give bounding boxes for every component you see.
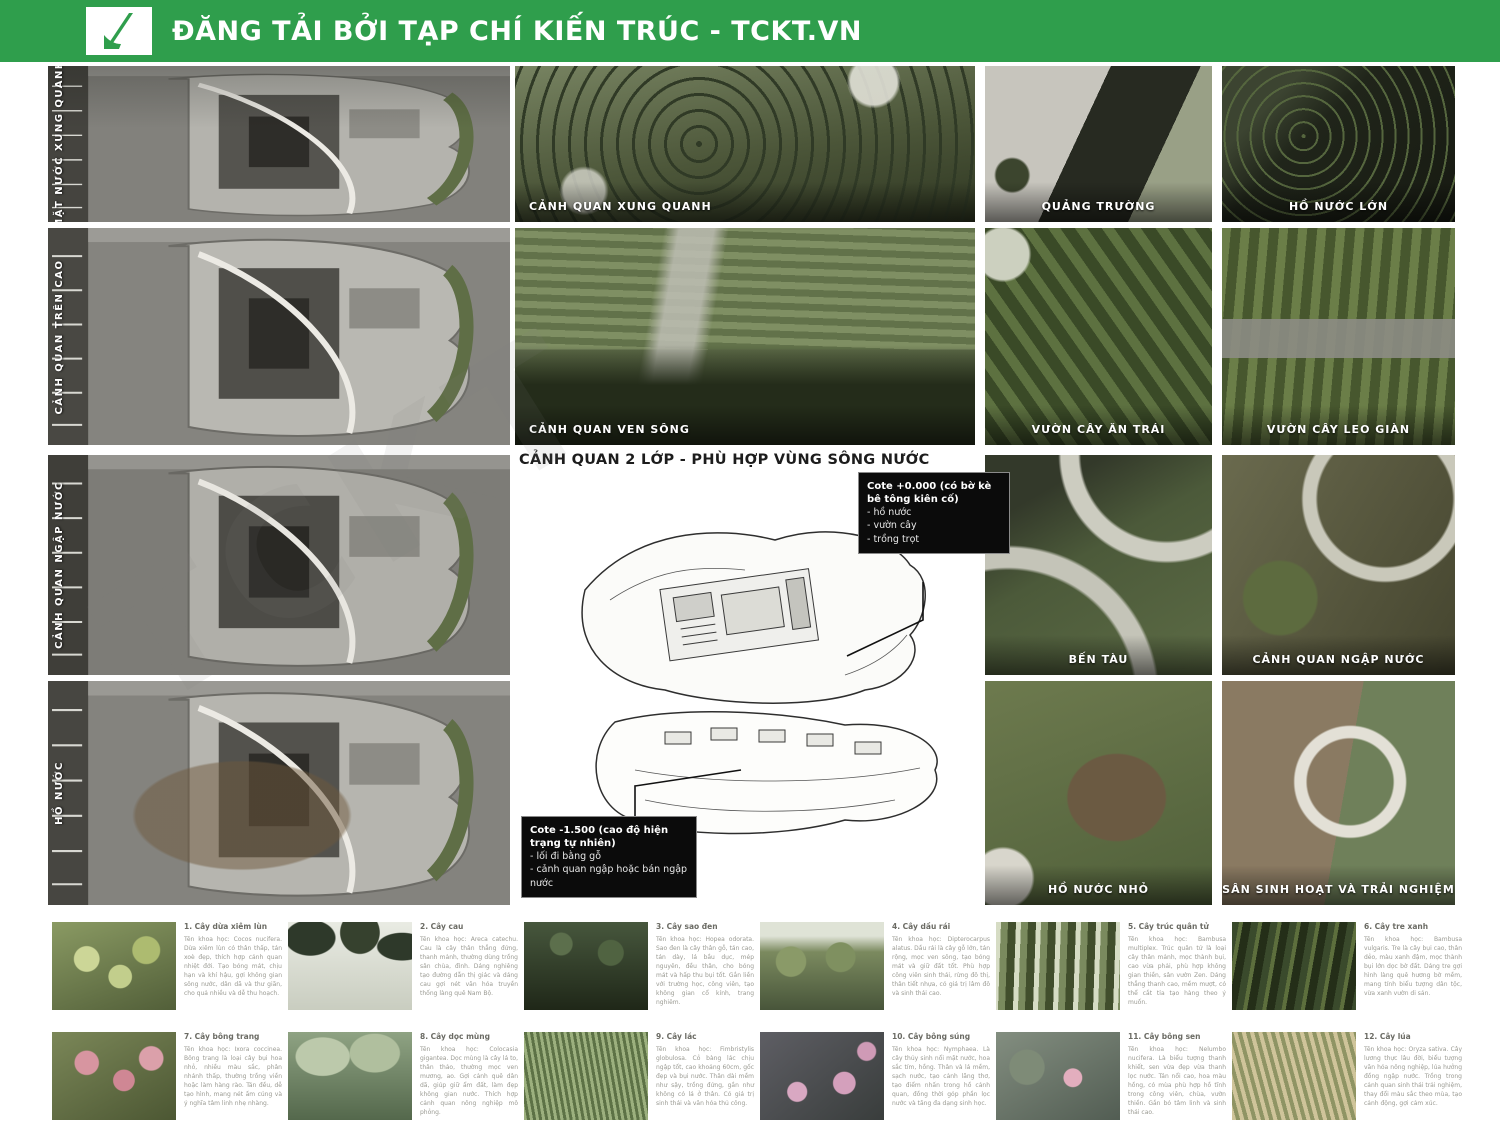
plant-entry-5: 5. Cây trúc quân tử Tên khoa học: Bambus…	[1128, 922, 1226, 1007]
areca-palm-photo	[288, 922, 412, 1010]
two-layer-landscape-diagram: CẢNH QUAN 2 LỚP - PHÙ HỢP VÙNG SÔNG NƯỚC	[515, 450, 975, 905]
render-riverside-landscape: CẢNH QUAN VEN SÔNG	[515, 228, 975, 445]
plant-description: Tên khoa học: Areca catechu. Cau là cây …	[420, 935, 518, 998]
plant-photo-11	[996, 1032, 1120, 1120]
site-plan-label-1: MẶT NƯỚC XUNG QUANH	[54, 66, 65, 222]
plant-title: 1. Cây dừa xiêm lùn	[184, 922, 282, 932]
render-label: VƯỜN CÂY LEO GIÀN	[1222, 423, 1455, 436]
plant-title: 5. Cây trúc quân tử	[1128, 922, 1226, 932]
render-small-lake: HỒ NƯỚC NHỎ	[985, 681, 1212, 905]
render-fruit-orchard: VƯỜN CÂY ĂN TRÁI	[985, 228, 1212, 445]
render-label: SÂN SINH HOẠT VÀ TRẢI NGHIỆM	[1222, 883, 1455, 896]
plant-row-1: 1. Cây dừa xiêm lùn Tên khoa học: Cocos …	[52, 922, 1462, 1010]
render-label: CẢNH QUAN XUNG QUANH	[529, 200, 712, 213]
lotus-photo	[996, 1032, 1120, 1120]
render-climbing-trellis: VƯỜN CÂY LEO GIÀN	[1222, 228, 1455, 445]
plant-entry-9: 9. Cây lác Tên khoa học: Fimbristylis gl…	[656, 1032, 754, 1108]
site-plan-panel-1: MẶT NƯỚC XUNG QUANH	[48, 66, 510, 222]
render-label: HỒ NƯỚC LỚN	[1222, 200, 1455, 213]
plant-photo-5	[996, 922, 1120, 1010]
plant-description: Tên khoa học: Colocasia gigantea. Dọc mù…	[420, 1045, 518, 1117]
plant-entry-3: 3. Cây sao đen Tên khoa học: Hopea odora…	[656, 922, 754, 1007]
plant-title: 11. Cây bông sen	[1128, 1032, 1226, 1042]
tckt-logo-icon	[99, 11, 139, 51]
plant-photo-1	[52, 922, 176, 1010]
plant-entry-2: 2. Cây cau Tên khoa học: Areca catechu. …	[420, 922, 518, 998]
plant-title: 2. Cây cau	[420, 922, 518, 932]
plant-description: Tên khoa học: Nymphaea. Là cây thủy sinh…	[892, 1045, 990, 1108]
site-plan-panel-4: HỒ NƯỚC	[48, 681, 510, 905]
plant-entry-4: 4. Cây dầu rái Tên khoa học: Dipterocarp…	[892, 922, 990, 998]
render-big-lake: HỒ NƯỚC LỚN	[1222, 66, 1455, 222]
callout-item: - cảnh quan ngập hoặc bán ngập nước	[530, 863, 688, 890]
plant-description: Tên khoa học: Oryza sativa. Cây lương th…	[1364, 1045, 1462, 1108]
header-title: ĐĂNG TẢI BỞI TẠP CHÍ KIẾN TRÚC - TCKT.VN	[172, 0, 862, 62]
plant-photo-2	[288, 922, 412, 1010]
plant-entry-6: 6. Cây tre xanh Tên khoa học: Bambusa vu…	[1364, 922, 1462, 998]
site-plan-label-3: CẢNH QUAN NGẬP NƯỚC	[54, 481, 65, 649]
header-bar: ĐĂNG TẢI BỞI TẠP CHÍ KIẾN TRÚC - TCKT.VN	[0, 0, 1500, 62]
plant-title: 10. Cây bông súng	[892, 1032, 990, 1042]
green-bamboo-photo	[1232, 922, 1356, 1010]
render-surrounding-landscape: CẢNH QUAN XUNG QUANH	[515, 66, 975, 222]
plant-title: 12. Cây lúa	[1364, 1032, 1462, 1042]
plant-photo-8	[288, 1032, 412, 1120]
render-label: QUẢNG TRƯỜNG	[985, 200, 1212, 213]
plant-photo-3	[524, 922, 648, 1010]
site-plan-panel-2: CẢNH QUAN TRÊN CAO	[48, 228, 510, 445]
plant-entry-8: 8. Cây dọc mùng Tên khoa học: Colocasia …	[420, 1032, 518, 1117]
dipterocarpus-photo	[760, 922, 884, 1010]
plant-description: Tên khoa học: Bambusa multiplex. Trúc qu…	[1128, 935, 1226, 1007]
coconut-palm-photo	[52, 922, 176, 1010]
tckt-logo	[86, 7, 152, 55]
plant-photo-4	[760, 922, 884, 1010]
hopea-forest-photo	[524, 922, 648, 1010]
plant-entry-12: 12. Cây lúa Tên khoa học: Oryza sativa. …	[1364, 1032, 1462, 1108]
plant-title: 9. Cây lác	[656, 1032, 754, 1042]
callout-item: - vườn cây	[867, 519, 1001, 532]
sedge-grass-photo	[524, 1032, 648, 1120]
plant-photo-7	[52, 1032, 176, 1120]
site-plan-label-4: HỒ NƯỚC	[54, 761, 65, 825]
plant-title: 3. Cây sao đen	[656, 922, 754, 932]
plant-description: Tên khoa học: Cocos nucifera. Dừa xiêm l…	[184, 935, 282, 998]
waterlily-photo	[760, 1032, 884, 1120]
plant-title: 7. Cây bông trang	[184, 1032, 282, 1042]
render-label: HỒ NƯỚC NHỎ	[985, 883, 1212, 896]
plant-photo-10	[760, 1032, 884, 1120]
plant-photo-9	[524, 1032, 648, 1120]
callout-item: - hồ nước	[867, 506, 1001, 519]
presentation-board: ĐĂNG TẢI BỞI TẠP CHÍ KIẾN TRÚC - TCKT.VN…	[0, 0, 1500, 1125]
plant-row-2: 7. Cây bông trang Tên khoa học: Ixora co…	[52, 1032, 1462, 1120]
diagram-title: CẢNH QUAN 2 LỚP - PHÙ HỢP VÙNG SÔNG NƯỚC	[519, 452, 930, 468]
render-flooded-landscape: CẢNH QUAN NGẬP NƯỚC	[1222, 455, 1455, 675]
rice-plant-photo	[1232, 1032, 1356, 1120]
site-plan-label-2: CẢNH QUAN TRÊN CAO	[54, 259, 65, 414]
site-plan-drawing	[48, 228, 510, 445]
plant-title: 6. Cây tre xanh	[1364, 922, 1462, 932]
panel-tint	[48, 681, 510, 905]
render-label: CẢNH QUAN VEN SÔNG	[529, 423, 690, 436]
plant-entry-11: 11. Cây bông sen Tên khoa học: Nelumbo n…	[1128, 1032, 1226, 1117]
plant-title: 8. Cây dọc mùng	[420, 1032, 518, 1042]
render-boat-pier: BẾN TÀU	[985, 455, 1212, 675]
panel-tint	[48, 66, 510, 222]
plant-photo-12	[1232, 1032, 1356, 1120]
plant-description: Tên khoa học: Ixora coccinea. Bông trang…	[184, 1045, 282, 1108]
callout-heading: Cote -1.500 (cao độ hiện trạng tự nhiên)	[530, 824, 688, 850]
site-plan-panel-3: CẢNH QUAN NGẬP NƯỚC	[48, 455, 510, 675]
plant-description: Tên khoa học: Hopea odorata. Sao đen là …	[656, 935, 754, 1007]
plant-title: 4. Cây dầu rái	[892, 922, 990, 932]
plant-description: Tên khoa học: Nelumbo nucifera. Là biểu …	[1128, 1045, 1226, 1117]
render-activity-yard: SÂN SINH HOẠT VÀ TRẢI NGHIỆM	[1222, 681, 1455, 905]
render-label: CẢNH QUAN NGẬP NƯỚC	[1222, 653, 1455, 666]
site-plan-drawing	[48, 455, 510, 675]
callout-heading: Cote +0.000 (có bờ kè bê tông kiên cố)	[867, 480, 1001, 506]
plant-photo-6	[1232, 922, 1356, 1010]
plant-description: Tên khoa học: Bambusa vulgaris. Tre là c…	[1364, 935, 1462, 998]
ixora-photo	[52, 1032, 176, 1120]
callout-item: - lối đi bằng gỗ	[530, 850, 688, 863]
render-label: BẾN TÀU	[985, 653, 1212, 666]
plant-entry-7: 7. Cây bông trang Tên khoa học: Ixora co…	[184, 1032, 282, 1108]
plant-entry-10: 10. Cây bông súng Tên khoa học: Nymphaea…	[892, 1032, 990, 1108]
render-plaza: QUẢNG TRƯỜNG	[985, 66, 1212, 222]
plant-description: Tên khoa học: Dipterocarpus alatus. Dầu …	[892, 935, 990, 998]
callout-cote-minus-1500: Cote -1.500 (cao độ hiện trạng tự nhiên)…	[521, 816, 697, 898]
callout-item: - trồng trọt	[867, 533, 1001, 546]
render-label: VƯỜN CÂY ĂN TRÁI	[985, 423, 1212, 436]
bambusa-multiplex-photo	[996, 922, 1120, 1010]
plant-description: Tên khoa học: Fimbristylis globulosa. Cỏ…	[656, 1045, 754, 1108]
plant-entry-1: 1. Cây dừa xiêm lùn Tên khoa học: Cocos …	[184, 922, 282, 998]
taro-leaf-photo	[288, 1032, 412, 1120]
callout-cote-plus-0000: Cote +0.000 (có bờ kè bê tông kiên cố) -…	[858, 472, 1010, 554]
